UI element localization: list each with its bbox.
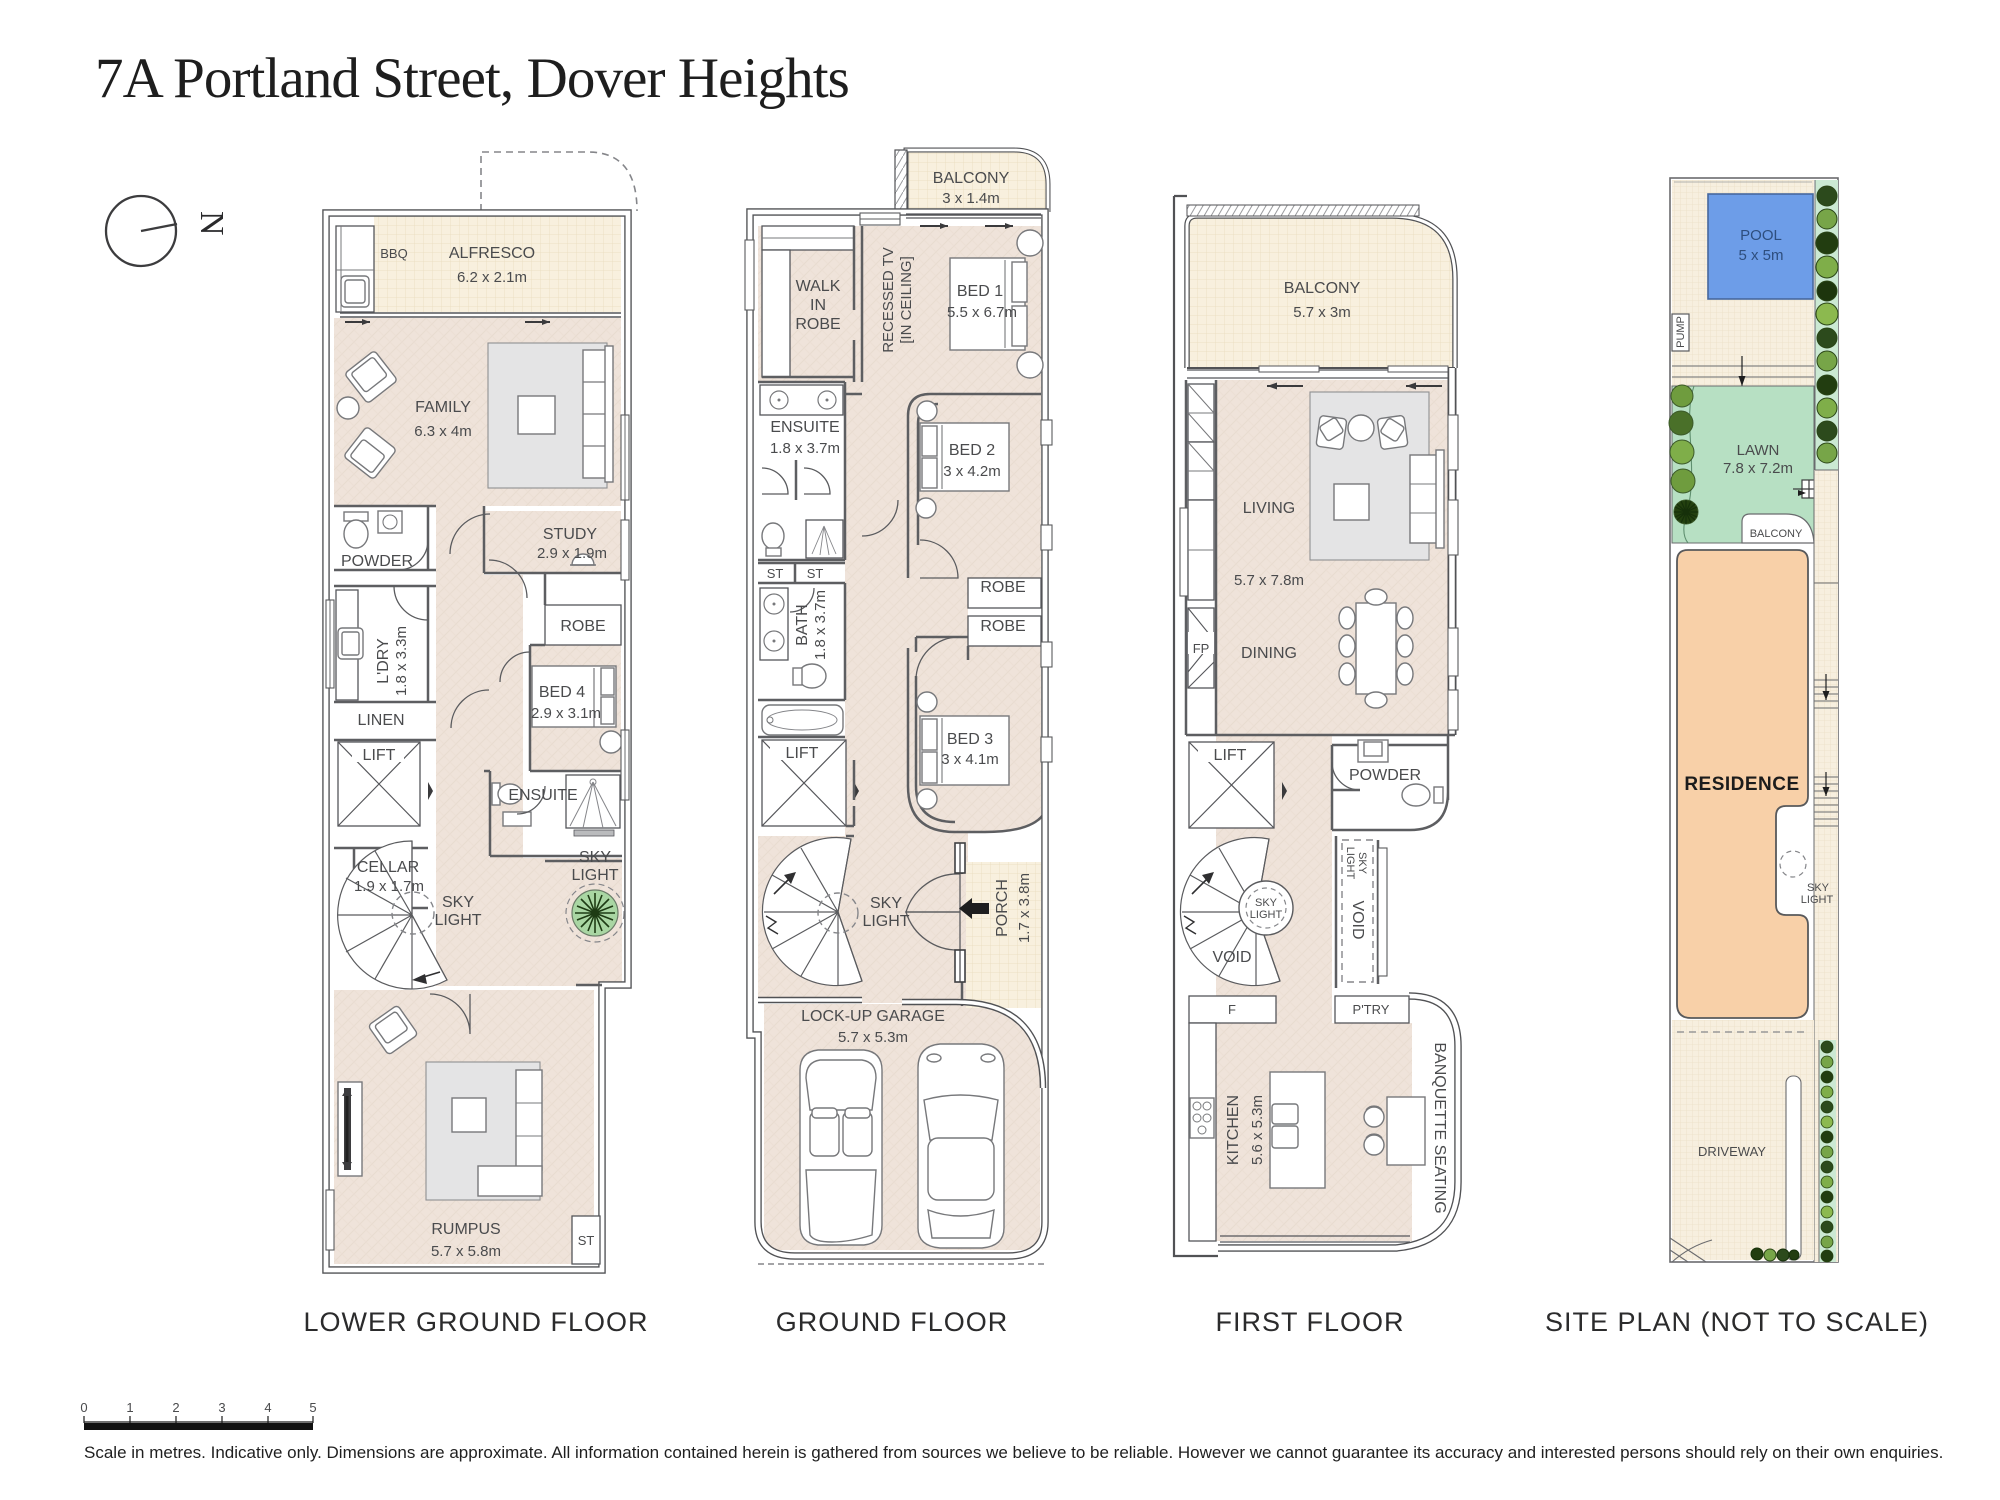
svg-text:SKY: SKY [870,895,902,912]
svg-text:1.8 x 3.7m: 1.8 x 3.7m [812,590,829,660]
svg-text:SKY: SKY [579,849,611,866]
svg-text:BANQUETTE SEATING: BANQUETTE SEATING [1431,1042,1448,1213]
svg-text:ENSUITE: ENSUITE [770,419,839,436]
svg-text:6.2 x 2.1m: 6.2 x 2.1m [457,269,527,286]
svg-text:VOID: VOID [1212,949,1251,966]
svg-text:WALK: WALK [796,278,841,295]
svg-text:LIGHT: LIGHT [1344,847,1356,880]
svg-text:RESIDENCE: RESIDENCE [1684,774,1799,795]
svg-text:5.7 x 7.8m: 5.7 x 7.8m [1234,572,1304,589]
svg-text:BALCONY: BALCONY [1750,528,1803,540]
svg-text:CELLAR: CELLAR [357,859,419,876]
svg-text:RECESSED TV: RECESSED TV [880,247,897,353]
svg-text:POWDER: POWDER [341,553,413,570]
svg-text:BALCONY: BALCONY [1284,280,1361,297]
svg-text:BALCONY: BALCONY [933,170,1010,187]
svg-text:1.7 x 3.8m: 1.7 x 3.8m [1016,873,1033,943]
svg-text:7.8 x 7.2m: 7.8 x 7.2m [1723,460,1793,477]
svg-text:[IN CEILING]: [IN CEILING] [898,256,915,344]
svg-text:N: N [193,211,230,236]
svg-text:VOID: VOID [1349,900,1366,939]
svg-text:LIGHT: LIGHT [1801,894,1834,906]
svg-text:ST: ST [578,1233,595,1248]
svg-text:LOWER GROUND FLOOR: LOWER GROUND FLOOR [303,1307,648,1337]
svg-text:ST: ST [807,566,824,581]
svg-text:FAMILY: FAMILY [415,399,471,416]
svg-text:LIFT: LIFT [363,747,396,764]
svg-text:3 x 4.2m: 3 x 4.2m [943,463,1001,480]
svg-text:BED 1: BED 1 [957,283,1003,300]
svg-text:ROBE: ROBE [795,316,840,333]
svg-text:BED 2: BED 2 [949,442,995,459]
svg-text:LOCK-UP GARAGE: LOCK-UP GARAGE [801,1008,945,1025]
svg-text:SITE PLAN (NOT TO SCALE): SITE PLAN (NOT TO SCALE) [1545,1307,1929,1337]
svg-text:ROBE: ROBE [980,618,1025,635]
svg-text:KITCHEN: KITCHEN [1225,1095,1242,1165]
svg-text:FIRST FLOOR: FIRST FLOOR [1215,1307,1404,1337]
svg-text:4: 4 [264,1400,271,1415]
svg-text:LIFT: LIFT [1214,747,1247,764]
svg-text:Scale in metres. Indicative on: Scale in metres. Indicative only. Dimens… [84,1443,1943,1462]
svg-text:2: 2 [172,1400,179,1415]
svg-text:DRIVEWAY: DRIVEWAY [1698,1144,1766,1159]
svg-text:5.7 x 5.3m: 5.7 x 5.3m [838,1029,908,1046]
svg-text:L'DRY: L'DRY [375,638,392,684]
svg-text:STUDY: STUDY [543,526,598,543]
svg-text:2.9 x 1.9m: 2.9 x 1.9m [537,545,607,562]
svg-text:PORCH: PORCH [994,879,1011,937]
svg-text:RUMPUS: RUMPUS [431,1221,500,1238]
svg-text:LIGHT: LIGHT [862,913,909,930]
svg-text:7A Portland Street, Dover Heig: 7A Portland Street, Dover Heights [95,47,849,110]
svg-text:5 x 5m: 5 x 5m [1738,247,1783,264]
svg-text:F: F [1228,1002,1236,1017]
svg-text:BED 4: BED 4 [539,684,585,701]
svg-text:FP: FP [1193,641,1210,656]
svg-text:BED 3: BED 3 [947,731,993,748]
svg-text:5: 5 [309,1400,316,1415]
svg-text:6.3 x 4m: 6.3 x 4m [414,423,472,440]
svg-text:POOL: POOL [1740,227,1782,244]
svg-text:1.8 x 3.7m: 1.8 x 3.7m [770,440,840,457]
svg-text:LIGHT: LIGHT [1250,909,1283,921]
svg-text:2.9 x 3.1m: 2.9 x 3.1m [531,705,601,722]
svg-text:5.7 x 3m: 5.7 x 3m [1293,304,1351,321]
svg-text:LIGHT: LIGHT [434,912,481,929]
svg-text:5.5 x 6.7m: 5.5 x 6.7m [947,304,1017,321]
svg-text:LINEN: LINEN [357,712,404,729]
svg-text:LAWN: LAWN [1737,442,1780,459]
svg-text:ST: ST [767,566,784,581]
svg-text:SKY: SKY [1807,882,1830,894]
svg-text:LIGHT: LIGHT [571,867,618,884]
svg-text:1.8 x 3.3m: 1.8 x 3.3m [393,626,410,696]
svg-text:BATH: BATH [794,604,811,645]
svg-text:0: 0 [80,1400,87,1415]
svg-text:3: 3 [218,1400,225,1415]
svg-text:SKY: SKY [1356,852,1368,875]
svg-text:SKY: SKY [1255,897,1278,909]
svg-text:GROUND FLOOR: GROUND FLOOR [776,1307,1009,1337]
svg-text:P'TRY: P'TRY [1353,1002,1390,1017]
svg-text:ROBE: ROBE [560,618,605,635]
svg-text:BBQ: BBQ [380,246,407,261]
svg-text:ENSUITE: ENSUITE [508,787,577,804]
svg-text:PUMP: PUMP [1675,316,1687,348]
svg-text:5.6 x 5.3m: 5.6 x 5.3m [1249,1095,1266,1165]
svg-text:ROBE: ROBE [980,579,1025,596]
svg-text:SKY: SKY [442,894,474,911]
svg-text:ALFRESCO: ALFRESCO [449,245,535,262]
svg-text:1: 1 [126,1400,133,1415]
svg-text:POWDER: POWDER [1349,767,1421,784]
svg-text:3 x 1.4m: 3 x 1.4m [942,190,1000,207]
svg-text:LIFT: LIFT [786,745,819,762]
svg-text:1.9 x 1.7m: 1.9 x 1.7m [354,878,424,895]
svg-text:DINING: DINING [1241,645,1297,662]
svg-text:3 x 4.1m: 3 x 4.1m [941,751,999,768]
svg-text:5.7 x 5.8m: 5.7 x 5.8m [431,1243,501,1260]
svg-text:LIVING: LIVING [1243,500,1295,517]
svg-text:IN: IN [810,297,826,314]
